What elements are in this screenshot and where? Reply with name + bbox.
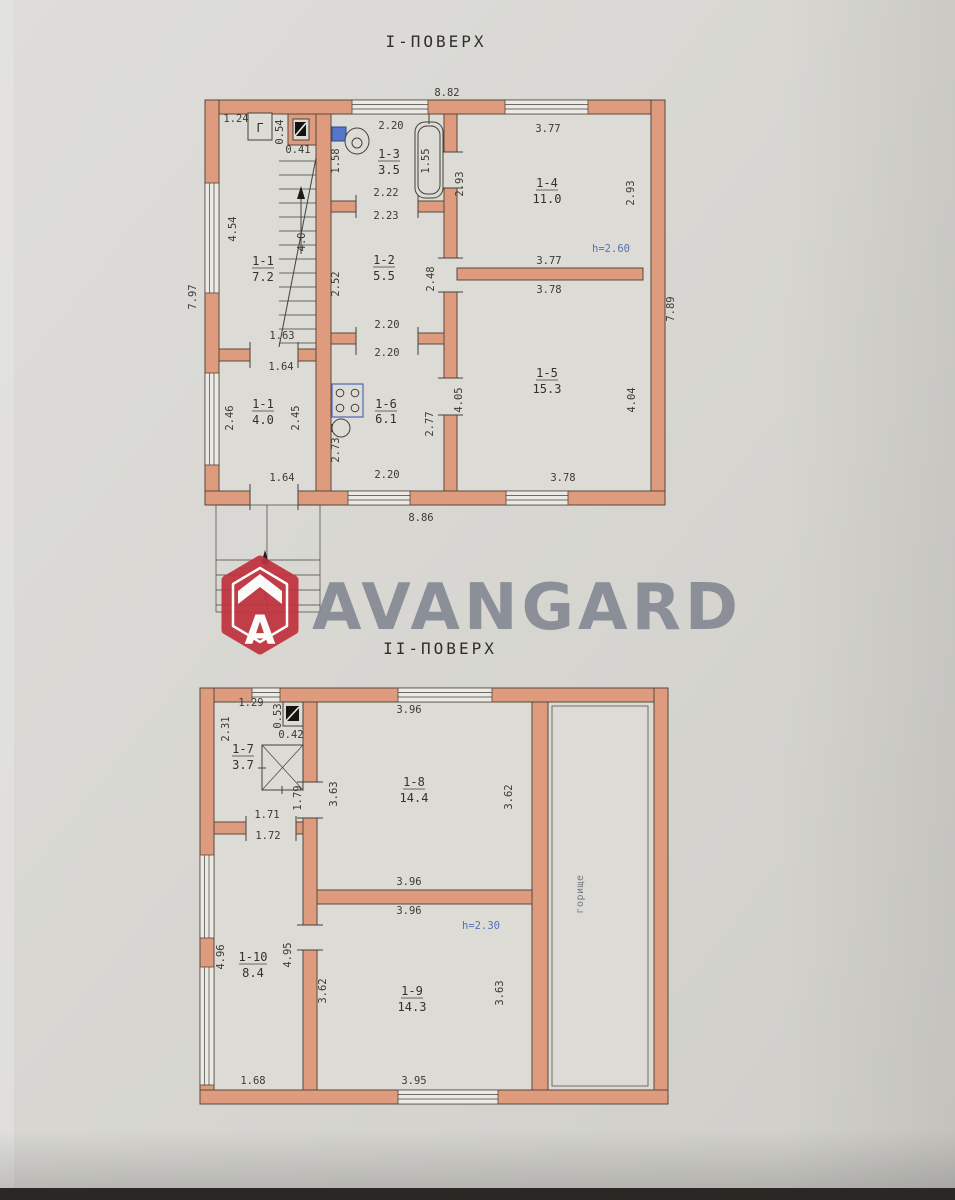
dimension-label: 1.55 [420,148,432,173]
room-area: 6.1 [375,412,397,426]
gas-meter-icon: Г [248,113,272,140]
dimension-label: 7.97 [187,284,199,309]
dimension-label: 2.23 [373,210,398,222]
height-note: h=2.60 [592,243,630,255]
dimension-label: 2.31 [220,716,232,741]
dimension-label: 2.77 [424,411,436,436]
floor2-title: ІІ-ПОВЕРХ [383,639,497,658]
room-area: 7.2 [252,270,274,284]
room-id: 1-3 [378,147,400,161]
photo-bottom-band [0,1188,955,1200]
dimension-label: 1.64 [269,472,294,484]
dimension-label: 1.71 [254,809,279,821]
logo-letter: A [245,608,276,654]
dimension-label: 1.79 [292,785,304,810]
room-id: 1-9 [401,984,423,998]
dimension-label: 4.95 [282,942,294,967]
dimension-label: 3.95 [401,1075,426,1087]
room-area: 5.5 [373,269,395,283]
dimension-label: 2.46 [224,405,236,430]
attic-strip-interior [548,702,654,1090]
room-area: 15.3 [533,382,562,396]
dimension-label: 1.24 [223,113,248,125]
dimension-label: 3.78 [550,472,575,484]
dimension-label: 1.72 [255,830,280,842]
dimension-label: 7.89 [665,296,677,321]
room-id: 1-2 [373,253,395,267]
dimension-label: 0.53 [272,703,284,728]
room-area: 3.7 [232,758,254,772]
dimension-label: 2.45 [290,405,302,430]
dimension-label: 3.96 [396,905,421,917]
dimension-label: 8.86 [408,512,433,524]
dimension-label: 3.78 [536,284,561,296]
dimension-label: 2.20 [374,347,399,359]
dimension-label: 8.82 [434,87,459,99]
floor1-plan: Г [187,87,677,524]
scanned-floorplan-page: І-ПОВЕРХ [0,0,955,1200]
dimension-label: 3.63 [494,980,506,1005]
brand-watermark-text: AVANGARD [312,571,742,645]
dimension-label: 1.68 [240,1075,265,1087]
room-id: 1-7 [232,742,254,756]
room-area: 14.4 [400,791,429,805]
dimension-label: 2.73 [330,437,342,462]
dimension-label: 3.62 [317,978,329,1003]
room-area: 8.4 [242,966,264,980]
dimension-label: 0.42 [278,729,303,741]
dimension-label: 1.58 [330,148,342,173]
room-area: 14.3 [398,1000,427,1014]
dimension-label: 2.93 [454,171,466,196]
dimension-label: 3.77 [536,255,561,267]
dimension-label: 2.22 [373,187,398,199]
dimension-label: 3.77 [535,123,560,135]
room-id: 1-10 [239,950,268,964]
room-id: 1-4 [536,176,558,190]
room-area: 11.0 [533,192,562,206]
room-id: 1-1 [252,397,274,411]
dimension-label: 0.41 [285,144,310,156]
chimney-icon [293,119,309,140]
dimension-label: 2.20 [378,120,403,132]
dimension-label: 4.04 [626,387,638,412]
dimension-label: 3.62 [503,784,515,809]
dimension-label: 4.54 [227,216,239,241]
dimension-label: 0.54 [274,119,286,144]
chimney-icon [283,702,303,726]
attic-label: горище [575,874,586,913]
dimension-label: 1.63 [269,330,294,342]
dimension-label: 2.48 [425,266,437,291]
avangard-logo-icon: A [226,560,294,654]
room-id: 1-8 [403,775,425,789]
dimension-label: 2.20 [374,469,399,481]
dimension-label: 4.96 [215,944,227,969]
dimension-label: 3.63 [328,781,340,806]
photo-right-shade [780,0,955,1200]
dimension-label: 1.64 [268,361,293,373]
paper-left-edge [0,0,14,1200]
dimension-label: 2.52 [330,271,342,296]
room-area: 3.5 [378,163,400,177]
photo-bottom-shade [0,1130,955,1188]
gas-meter-label: Г [256,121,263,135]
dimension-label: 1.29 [238,697,263,709]
room-id: 1-5 [536,366,558,380]
dimension-label: 4.05 [453,387,465,412]
floor1-title: І-ПОВЕРХ [385,32,486,51]
height-note: h=2.30 [462,920,500,932]
room-id: 1-6 [375,397,397,411]
sink-icon [332,419,350,437]
room-id: 1-1 [252,254,274,268]
dimension-label: 3.96 [396,876,421,888]
room-area: 4.0 [252,413,274,427]
dimension-label: 2.93 [625,180,637,205]
dimension-label: 3.96 [396,704,421,716]
floorplan-scan: І-ПОВЕРХ [0,0,955,1200]
floor2-plan: 1-7 3.7 1-8 14.4 1-9 14.3 1-10 8.4 1.290… [200,688,668,1104]
dimension-label: 2.20 [374,319,399,331]
room-label: 1-6 6.1 [375,397,397,426]
dimension-label: 4.0 [296,233,308,252]
